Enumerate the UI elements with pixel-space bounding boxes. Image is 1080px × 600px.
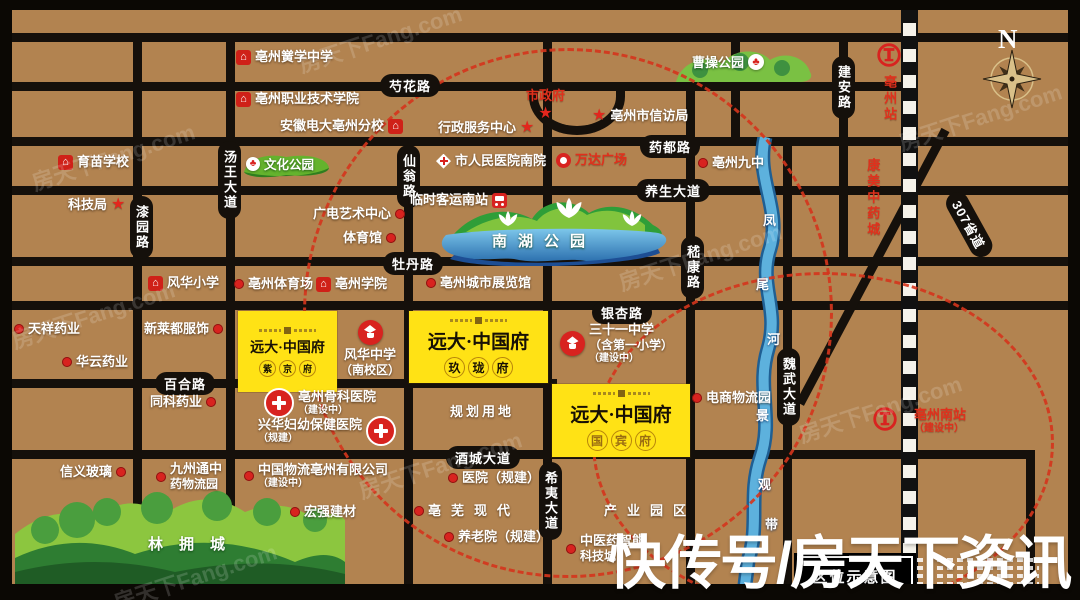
road-label-qiyuan: 漆园路: [130, 196, 153, 259]
location-dot-icon: [234, 279, 244, 289]
poi-xinfang: ★亳州市信访局: [592, 108, 688, 124]
school-icon: ⌂: [58, 155, 73, 170]
china-railway-icon: [872, 406, 898, 437]
poi-label: 亳州九中: [712, 155, 764, 171]
poi-tiyuchang: 亳州体育场: [234, 276, 313, 292]
location-dot-icon: [444, 532, 454, 542]
school-icon: ⌂: [388, 119, 403, 134]
project-brand-name: 远大·中国府: [570, 400, 671, 427]
location-dot-icon: [116, 467, 126, 477]
project-block-jiulong: 远大·中国府玖珑府: [409, 311, 548, 383]
poi-label: 风华小学: [167, 275, 219, 291]
poi-tongke: 同科药业: [150, 394, 216, 410]
poi-label: 亳州南站: [914, 407, 966, 423]
poi-zhanlan: 亳州城市展览馆: [426, 275, 531, 291]
poi-sublabel: （建设中）: [914, 423, 964, 436]
poi-label: 养老院（规建）: [458, 529, 549, 545]
greenbelt-name-char: 景: [756, 405, 769, 424]
graduation-cap-icon: [560, 331, 585, 356]
poi-label: 市政府: [526, 88, 565, 104]
school-icon: ⌂: [148, 276, 163, 291]
project-block-guobin: 远大·中国府国宾府: [552, 384, 690, 457]
project-logo-line: [593, 390, 650, 397]
location-dot-icon: [566, 544, 576, 554]
poi-zgwuliu: 中国物流亳州有限公司（建设中）: [244, 462, 388, 491]
poi-label: 亳州骨科医院: [298, 389, 376, 405]
poi-label: 临时客运南站: [410, 192, 488, 208]
poi-hongqiang: 宏强建材: [290, 504, 356, 520]
poi-label: 电商物流园: [706, 390, 771, 406]
poi-label: 信义玻璃: [60, 464, 112, 480]
poi-keyun: 临时客运南站: [410, 192, 507, 208]
poi-fuyou: 兴华妇幼保健医院（规建）: [258, 416, 396, 446]
poi-label: 亳州城市展览馆: [440, 275, 531, 291]
river-name-char: 尾: [756, 274, 769, 293]
poi-southstation: 亳州南站（建设中）: [872, 406, 966, 437]
poi-label: 亳芜现代: [428, 503, 520, 519]
school-icon: ⌂: [236, 92, 251, 107]
poi-label: 规划用地: [450, 404, 514, 420]
location-dot-icon: [692, 393, 702, 403]
poi-label: 九州通中: [170, 461, 222, 477]
greenbelt-name-char: 观: [758, 474, 771, 493]
poi-sublabel: （规建）: [258, 433, 298, 446]
nanhu-park-label: 南湖公园: [492, 230, 596, 251]
poi-label: 广电艺术中心: [313, 206, 391, 222]
poi-label: 中国物流亳州有限公司: [258, 462, 388, 478]
china-railway-icon: [876, 42, 902, 73]
poi-fenghuamid: 风华中学（南校区）: [340, 320, 400, 378]
location-dot-icon: [156, 472, 166, 482]
poi-tiyuguan: 体育馆: [343, 230, 396, 246]
poi-sublabel: （建设中）: [258, 478, 308, 491]
poi-label: 三十一中学: [589, 322, 654, 338]
poi-label: 兴华妇幼保健医院: [258, 417, 362, 433]
road-label-mudan: 牡丹路: [383, 252, 443, 275]
location-dot-icon: [395, 209, 405, 219]
poi-bowuwest: 亳芜现代: [414, 503, 520, 519]
poi-yanglao: 养老院（规建）: [444, 529, 549, 545]
project-logo-line: [259, 327, 316, 334]
star-icon: ★: [111, 197, 125, 213]
road-label-yinxing: 银杏路: [592, 301, 652, 324]
poi-sublabel: 药物流园: [170, 477, 218, 492]
project-block-zijing: 远大·中国府紫京府: [238, 311, 337, 392]
road-label-yaodu: 药都路: [640, 135, 700, 158]
location-dot-icon: [414, 506, 424, 516]
road-label-s307: 307省道: [942, 188, 996, 261]
location-dot-icon: [14, 324, 24, 334]
poi-bzstation: 亳州站: [876, 42, 902, 123]
poi-sublabel: （含第一小学）: [589, 338, 673, 353]
road-label-jikang: 嵇康路: [681, 236, 704, 299]
poi-fenghuaxx: ⌂风华小学: [148, 275, 219, 291]
poi-zhiye: ⌂亳州职业技术学院: [236, 91, 359, 107]
poi-label: 市人民医院南院: [455, 153, 546, 169]
road-label-weiwu: 魏武大道: [777, 348, 800, 426]
star-icon: ★: [520, 120, 534, 136]
location-dot-icon: [698, 158, 708, 168]
poi-huayun: 华云药业: [62, 354, 128, 370]
poi-xinlaidou: 新莱都服饰: [144, 321, 223, 337]
hospital-cross-icon: [366, 416, 396, 446]
location-map: 南湖公园 ♣ 文化公园 曹操公园 ♣ 林拥城 N 区位示意图 快传号: [0, 0, 1080, 600]
poi-label: 亳州体育场: [248, 276, 313, 292]
poi-label: 新莱都服饰: [144, 321, 209, 337]
map-border-frame: [0, 0, 1080, 10]
page-watermark: 快传号/房天下资讯: [608, 516, 1070, 600]
road-label-jianan: 建安路: [832, 56, 855, 119]
poi-label: 亳州黉学中学: [255, 49, 333, 65]
road-label-shaohua: 芍花路: [380, 74, 440, 97]
road-label-jiucheng: 酒城大道: [446, 446, 520, 469]
school-icon: ⌂: [316, 277, 331, 292]
road-label-baihe: 百合路: [155, 372, 215, 395]
river-name-char: 凤: [763, 210, 776, 229]
caocao-park: 曹操公园 ♣: [692, 52, 764, 71]
project-brand-name: 远大·中国府: [428, 327, 529, 354]
poi-label: 育苗学校: [77, 154, 129, 170]
location-dot-icon: [62, 357, 72, 367]
linyong-city-label: 林拥城: [148, 533, 241, 554]
tree-icon: ♣: [748, 54, 764, 70]
location-dot-icon: [213, 324, 223, 334]
star-icon: ★: [538, 106, 552, 122]
project-sub-name: 紫京府: [259, 360, 316, 377]
poi-xinyi: 信义玻璃: [60, 464, 126, 480]
poi-yiyuan: 医院（规建）: [448, 470, 540, 486]
poi-kangmei: 康美中药城: [864, 158, 880, 238]
project-logo-line: [450, 317, 507, 324]
location-dot-icon: [290, 507, 300, 517]
location-dot-icon: [244, 471, 254, 481]
poi-label: 天祥药业: [28, 321, 80, 337]
star-icon: ★: [592, 108, 606, 124]
location-dot-icon: [426, 278, 436, 288]
location-dot-icon: [386, 233, 396, 243]
bus-station-icon: [492, 193, 507, 208]
poi-label: 亳州站: [881, 75, 897, 123]
wenhua-park: ♣ 文化公园: [246, 154, 314, 173]
poi-keji: 科技局★: [68, 197, 125, 213]
map-border-frame: [1068, 0, 1080, 600]
poi-sublabel: （南校区）: [340, 363, 400, 378]
project-sub-name: 玖珑府: [444, 357, 513, 378]
poi-guangdian: 广电艺术中心: [313, 206, 405, 222]
poi-label: 行政服务中心: [438, 120, 516, 136]
plaza-ring-icon: [556, 153, 571, 168]
map-border-frame: [0, 0, 12, 600]
poi-shizhengfu: 市政府★: [526, 88, 565, 122]
poi-label: 亳州职业技术学院: [255, 91, 359, 107]
poi-school31: 三十一中学（含第一小学）（建设中）: [560, 322, 673, 366]
poi-label: 亳州学院: [335, 276, 387, 292]
hospital-cross-icon: [264, 388, 294, 418]
poi-yumiao: ⌂育苗学校: [58, 154, 129, 170]
poi-bzxueyuan: ⌂亳州学院: [316, 276, 387, 292]
poi-label: 体育馆: [343, 230, 382, 246]
river-name-char: 河: [767, 329, 780, 348]
poi-label: 宏强建材: [304, 504, 356, 520]
school-icon: ⌂: [236, 50, 251, 65]
poi-wanda: 万达广场: [556, 152, 627, 168]
graduation-cap-icon: [358, 320, 383, 345]
poi-label: 亳州市信访局: [610, 108, 688, 124]
location-dot-icon: [206, 397, 216, 407]
poi-guke: 亳州骨科医院（建设中）: [264, 388, 376, 418]
medical-diamond-icon: [436, 154, 451, 169]
poi-label: 风华中学: [344, 347, 396, 363]
compass-rose-icon: [981, 48, 1043, 110]
poi-jiuzhoutong: 九州通中药物流园: [156, 461, 222, 492]
poi-xingzheng: 行政服务中心★: [438, 120, 534, 136]
poi-label: 安徽电大亳州分校: [280, 118, 384, 134]
poi-label: 华云药业: [76, 354, 128, 370]
road-label-yangsheng: 养生大道: [636, 179, 710, 202]
poi-jiuzhong: 亳州九中: [698, 155, 764, 171]
project-brand-name: 远大·中国府: [250, 337, 325, 357]
poi-tianxiang: 天祥药业: [14, 321, 80, 337]
poi-label: 同科药业: [150, 394, 202, 410]
location-dot-icon: [448, 473, 458, 483]
poi-dianshang: 电商物流园: [692, 390, 771, 406]
poi-hongxue: ⌂亳州黉学中学: [236, 49, 333, 65]
poi-renmin: 市人民医院南院: [436, 153, 546, 169]
poi-sublabel: （建设中）: [589, 353, 639, 366]
poi-label: 万达广场: [575, 152, 627, 168]
tree-icon: ♣: [246, 157, 260, 171]
project-sub-name: 国宾府: [587, 430, 656, 451]
poi-dianda: 安徽电大亳州分校⌂: [280, 118, 403, 134]
poi-label: 科技局: [68, 197, 107, 213]
poi-label: 康美中药城: [864, 158, 880, 238]
poi-guihua: 规划用地: [450, 404, 514, 420]
road-label-tangwang: 汤王大道: [218, 141, 241, 219]
poi-label: 医院（规建）: [462, 470, 540, 486]
